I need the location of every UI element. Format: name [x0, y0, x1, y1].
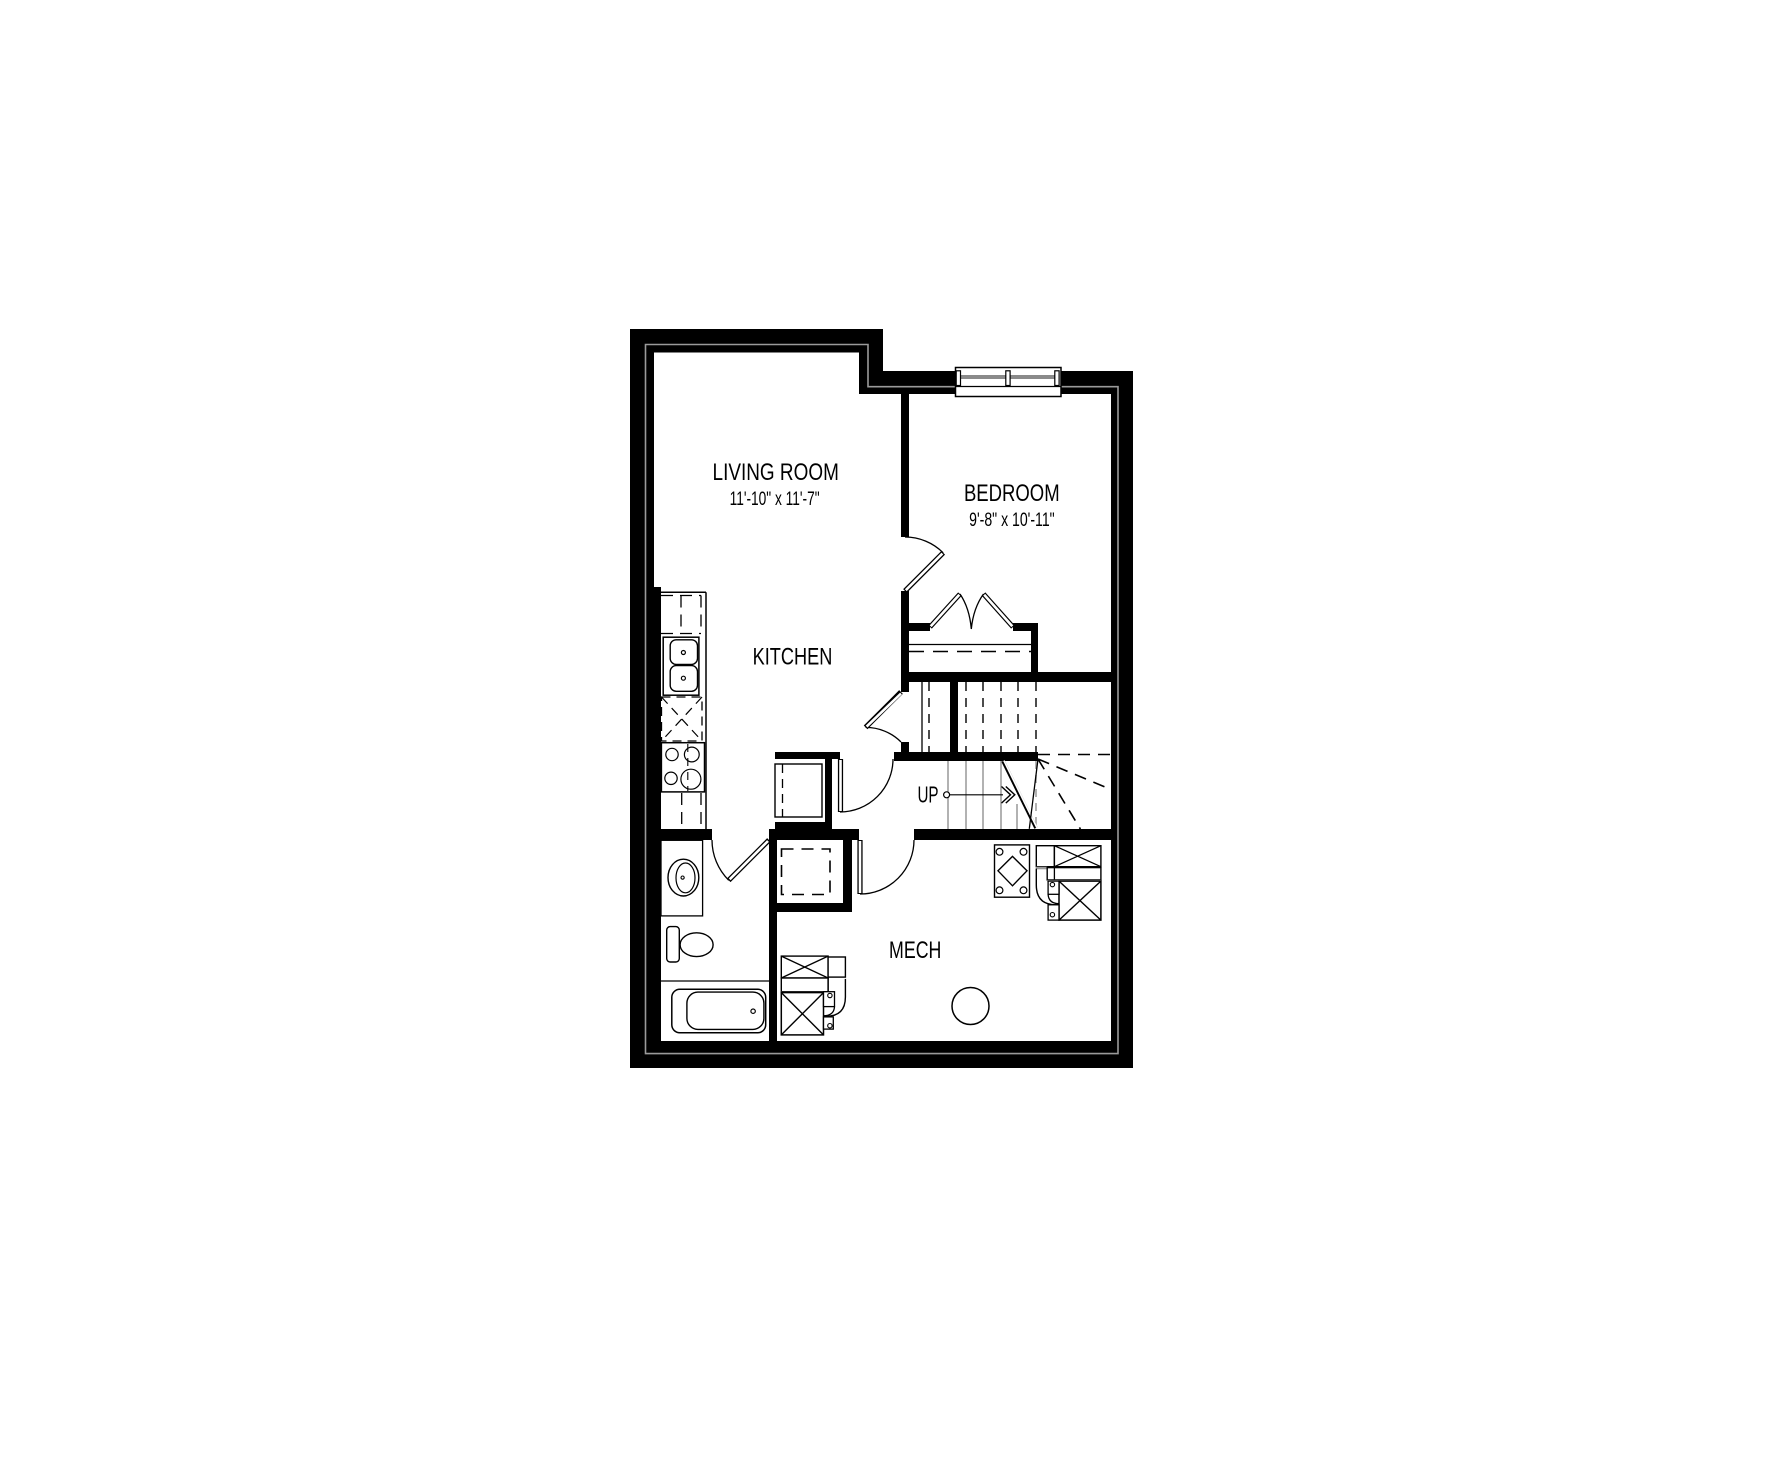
svg-text:UP: UP: [917, 782, 938, 808]
svg-text:11'-10" x 11'-7": 11'-10" x 11'-7": [730, 489, 820, 510]
svg-text:MECH: MECH: [889, 937, 941, 964]
svg-text:LIVING ROOM: LIVING ROOM: [713, 459, 839, 486]
svg-text:KITCHEN: KITCHEN: [753, 644, 833, 671]
svg-text:BEDROOM: BEDROOM: [964, 480, 1060, 507]
svg-text:9'-8" x 10'-11": 9'-8" x 10'-11": [969, 510, 1055, 531]
